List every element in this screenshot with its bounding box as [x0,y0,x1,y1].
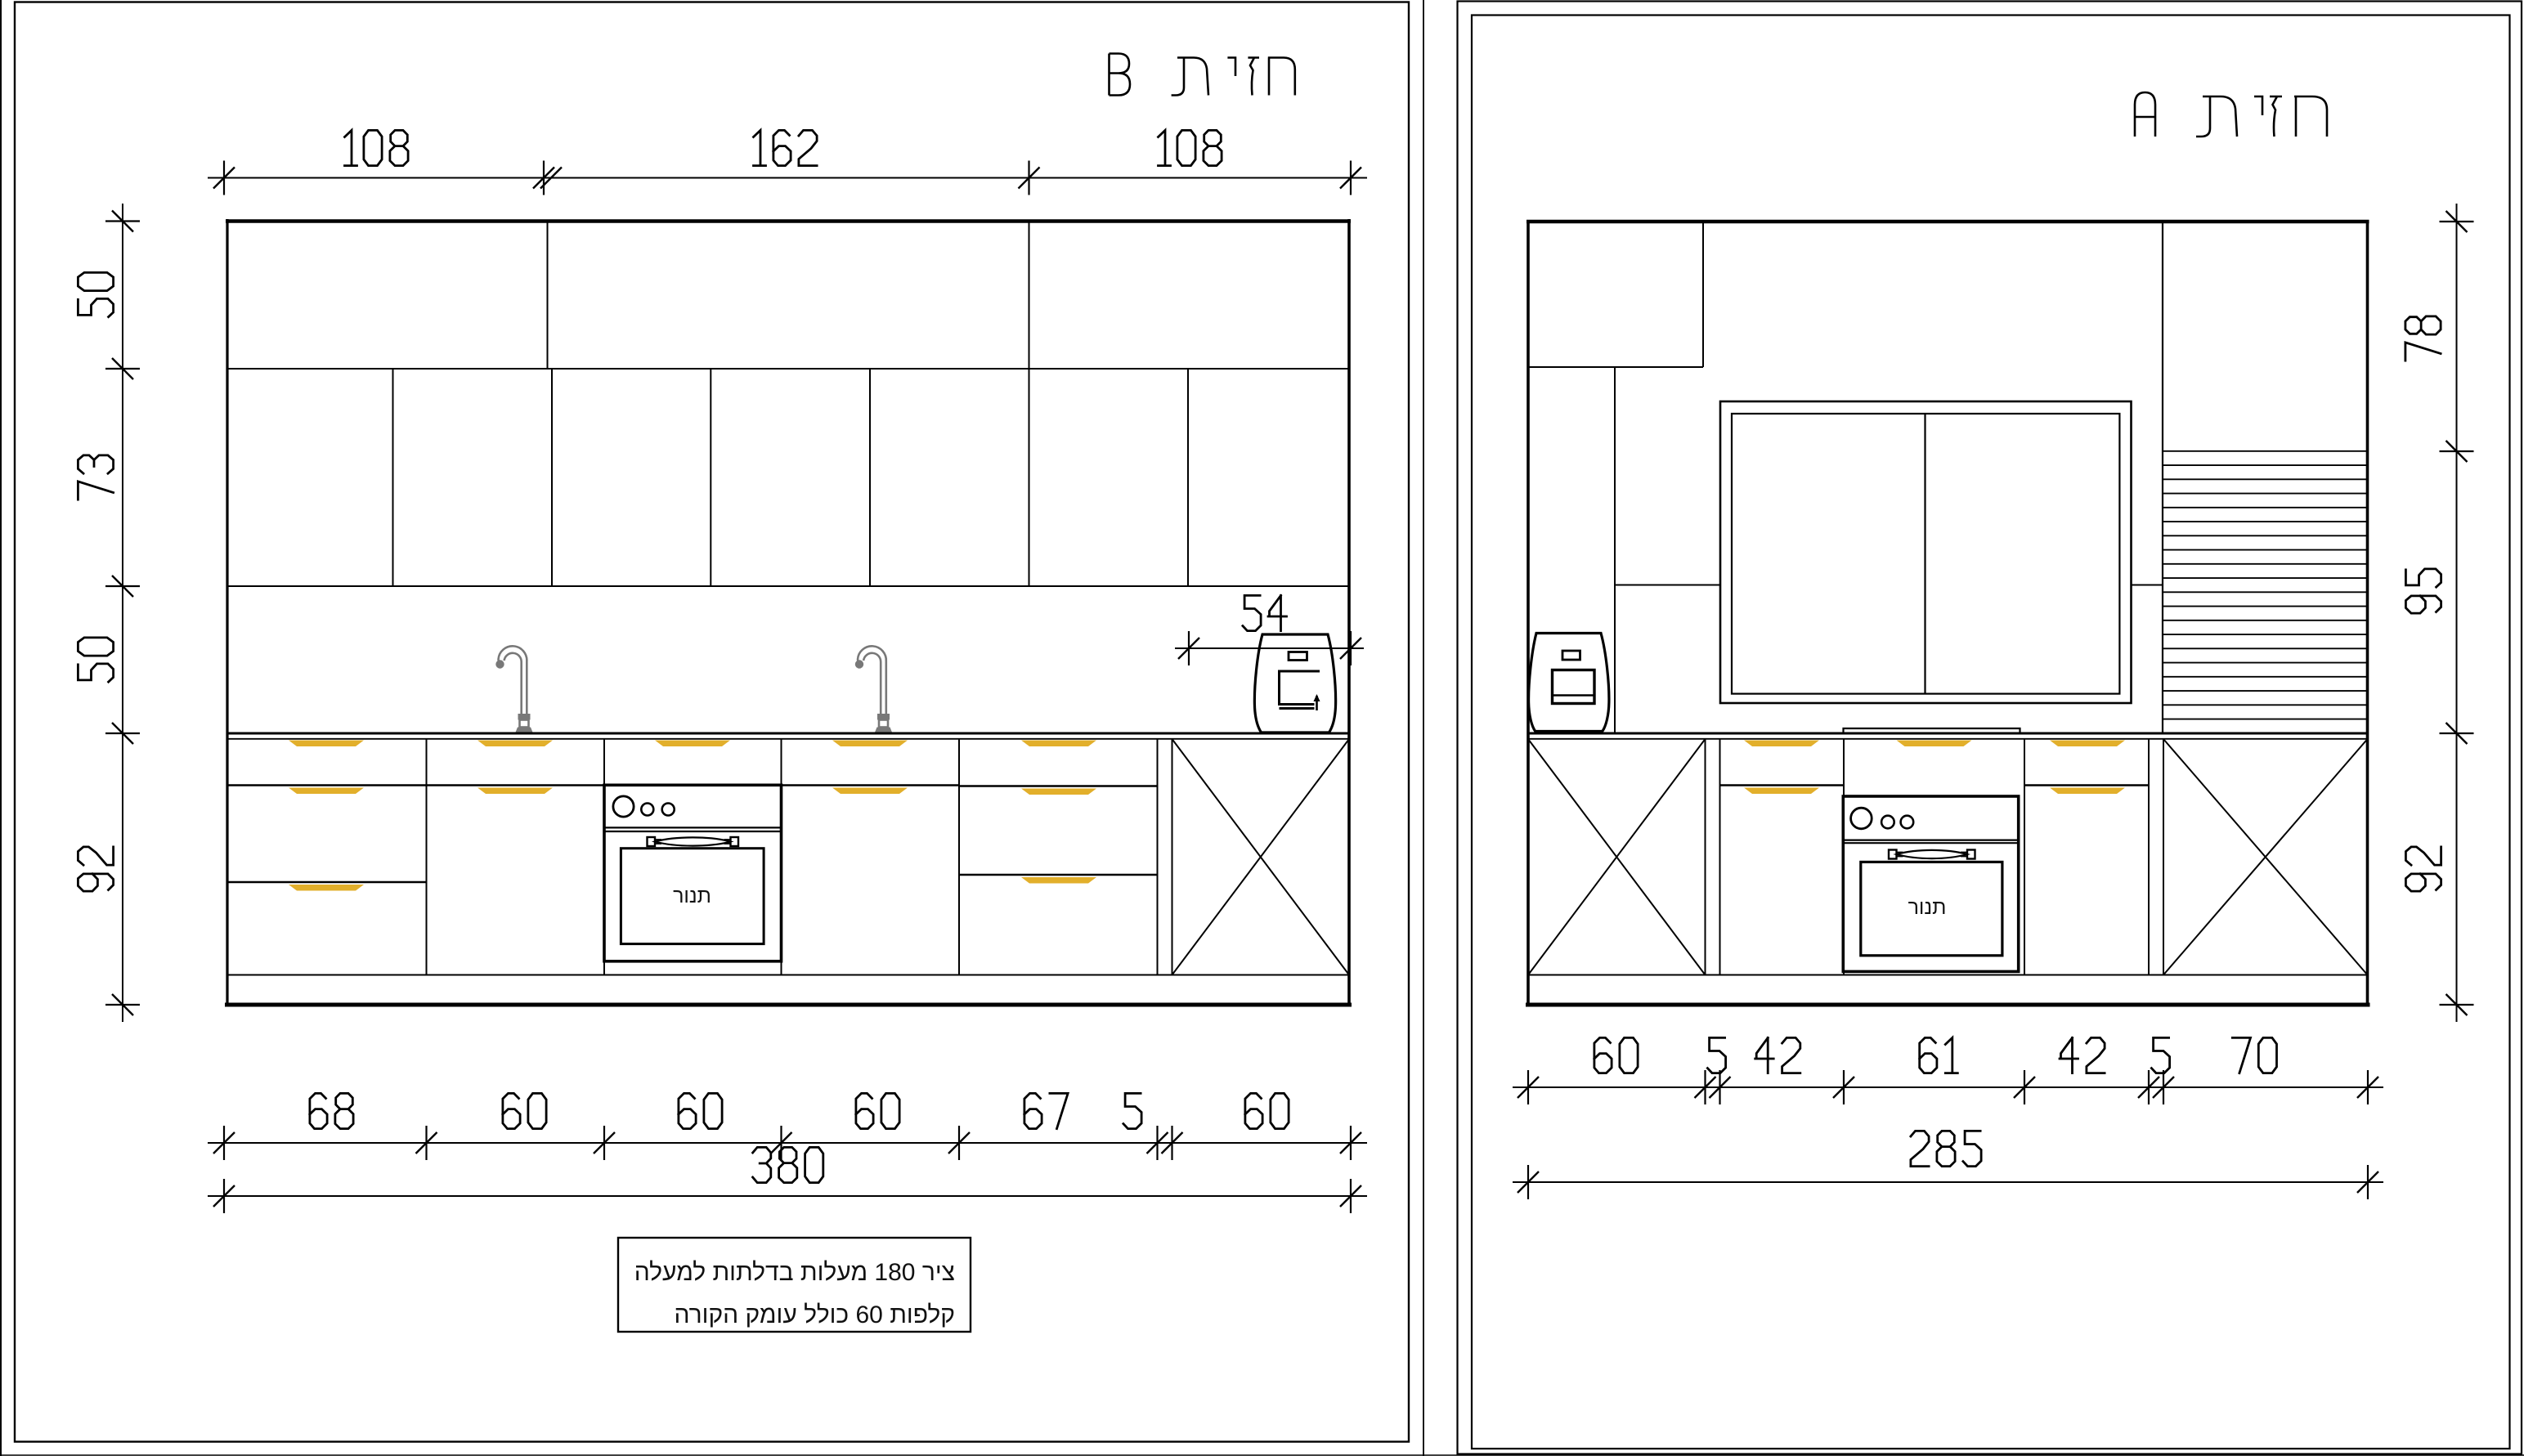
svg-text:תנור: תנור [1908,896,1947,919]
svg-text:תנור: תנור [673,885,711,907]
svg-text:קלפות 60 כולל עומק הקורה: קלפות 60 כולל עומק הקורה [675,1301,955,1328]
svg-text:ציר 180 מעלות בדלתות למעלה: ציר 180 מעלות בדלתות למעלה [634,1259,955,1286]
